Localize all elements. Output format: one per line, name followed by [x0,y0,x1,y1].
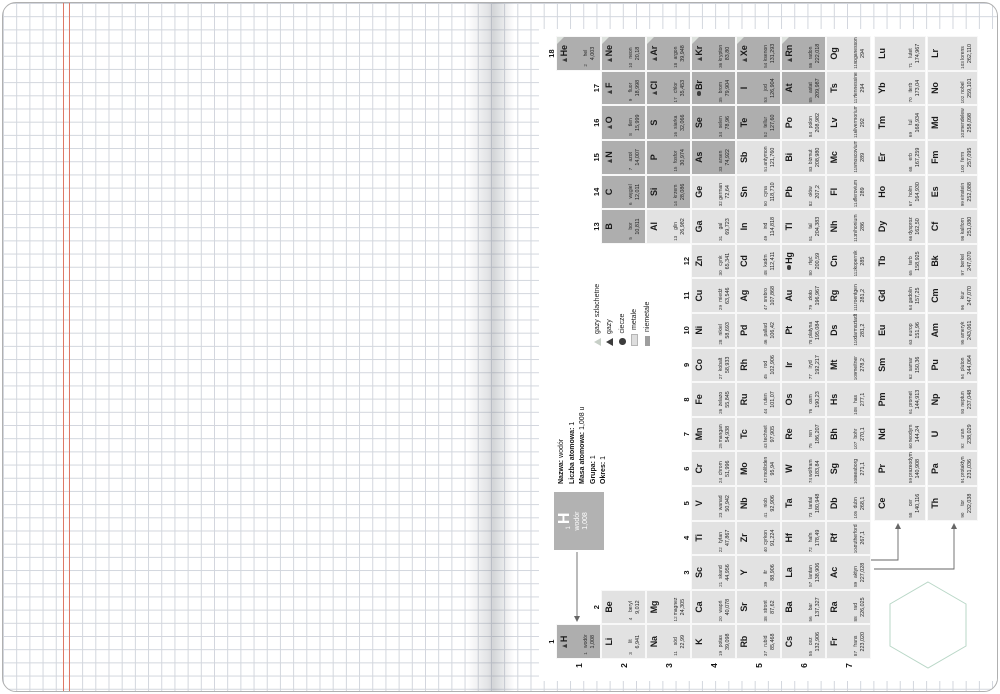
symbol-row: Sr [739,592,749,623]
element-symbol: Nd [877,428,887,440]
symbol-row: C [604,177,614,208]
atomic-mass: 257,095 [967,142,974,173]
gas-triangle-icon [607,90,612,94]
atomic-mass: 158,925 [915,246,922,277]
element-cell: Es99einstein252,088 [927,175,978,210]
atomic-mass: 97,905 [770,419,777,450]
atomic-number: 115 [853,166,858,173]
element-symbol: Es [930,187,940,198]
symbol-row: Cr [694,453,704,484]
atomic-number: 114 [853,200,858,207]
symbol-row: Tl [784,211,794,242]
symbol-row: Te [739,107,749,138]
element-cell: K19potas39,098 [691,624,736,659]
atomic-number: 107 [853,442,858,449]
element-cell: Nh113nihonium286 [826,209,871,244]
element-name: molibden [763,457,769,477]
atomic-mass: 294 [860,73,867,104]
atomic-mass: 10,811 [635,211,642,242]
element-name: ołów [808,183,814,201]
element-symbol: I [739,87,749,89]
atomic-mass: 262,110 [967,38,974,69]
atomic-number: 75 [808,442,813,449]
name-row: 35brom [718,73,724,104]
element-symbol: Cn [829,255,839,267]
element-symbol: Ge [694,186,704,198]
element-cell: Ac89aktyn227,028 [826,555,871,590]
atomic-mass: 24,305 [680,592,687,623]
element-cell: Ca20wapń40,078 [691,590,736,625]
name-row: 33arsen [718,142,724,173]
period-label: 5 [736,659,781,672]
triangle-dark-icon [606,338,613,346]
element-info-box: Nazwa: wodórLiczba atomowa: 1Masa atomow… [557,349,610,484]
atomic-mass: 40,078 [725,592,732,623]
atomic-mass: 294 [860,38,867,69]
atomic-number: 102 [960,96,965,103]
atomic-number: 58 [908,512,913,519]
atomic-number: 5 [628,235,633,242]
symbol-row: Lv [829,107,839,138]
name-row: 47srebro [763,280,769,311]
symbol-row: Po [784,107,794,138]
example-element-symbol: H [557,513,572,525]
atomic-mass: 32,066 [680,107,687,138]
symbol-row: Ts [829,73,839,104]
element-symbol: Mg [649,601,659,614]
element-cell: O8tlen15,999 [601,105,646,140]
element-name: oganesson [853,37,859,61]
element-cell: H1wodór1,008 [556,624,601,659]
element-cell: Ra88rad226,025 [826,590,871,625]
atomic-mass: 26,982 [680,211,687,242]
symbol-row: Es [930,177,940,208]
element-symbol: Ti [694,534,704,541]
atomic-number: 51 [763,166,768,173]
element-name: wolfram [808,459,814,477]
element-symbol: Si [649,188,659,196]
atomic-mass: 178,49 [815,523,822,554]
name-row: 36krypton [718,38,724,69]
atomic-number: 78 [808,339,813,346]
atomic-number: 17 [673,96,678,103]
symbol-row: Pb [784,177,794,208]
element-name: potas [718,632,724,650]
atomic-mass: 118,710 [770,177,777,208]
symbol-row: Cn [829,246,839,277]
atomic-mass: 55,845 [725,384,732,415]
atomic-mass: 292 [860,107,867,138]
atomic-mass: 207,2 [815,177,822,208]
gas-triangle-icon [562,644,567,648]
element-name: holm [908,183,914,201]
atomic-number: 19 [718,650,723,657]
atomic-number: 74 [808,477,813,484]
element-name: protaktyn [960,456,966,477]
name-row: 90tor [960,488,966,519]
symbol-row: Y [739,557,749,588]
atomic-mass: 144,913 [915,384,922,415]
element-name: wapń [718,598,724,616]
legend-label: gazy [606,319,613,334]
element-symbol: Cd [739,255,749,267]
element-name: bizmut [808,148,814,166]
element-cell: No102nobel259,101 [927,71,978,106]
element-name: krypton [718,44,724,62]
atomic-number: 100 [960,166,965,173]
element-symbol: Ag [739,290,749,302]
element-cell: Zn30cynk65,341 [691,244,736,279]
element-cell: Bh107bohr270,1 [826,417,871,452]
red-margin-line [63,3,70,691]
symbol-row: Mc [829,142,839,173]
element-cell: P15fosfor30,974 [646,140,691,175]
symbol-row: Ba [784,592,794,623]
info-label: Masa atomowa: [579,432,586,484]
name-row: 64gadolin [908,280,914,311]
name-row: 4beryl [628,592,634,623]
element-name: cez [808,632,814,650]
symbol-row: Ce [877,488,887,519]
atomic-number: 16 [673,131,678,138]
name-row: 31gal [718,211,724,242]
element-symbol: Ac [829,567,839,578]
symbol-row: Ho [877,177,887,208]
atomic-number: 28 [718,339,723,346]
atomic-mass: 168,934 [915,107,922,138]
element-symbol: Er [877,153,887,162]
atomic-mass: 83,80 [725,38,732,69]
element-name: has [853,390,859,408]
symbol-row: Sn [739,177,749,208]
element-name: tal [808,217,814,235]
name-row: 58cer [908,488,914,519]
name-row: 29miedź [718,280,724,311]
symbol-row: Rg [829,280,839,311]
element-name: ind [763,217,769,235]
symbol-row: Os [784,384,794,415]
element-name: cynk [718,252,724,270]
symbol-row: Ge [694,177,704,208]
atomic-number: 99 [960,200,965,207]
symbol-row: At [784,73,794,104]
element-symbol: Pm [877,393,887,407]
element-symbol: Ho [877,186,887,198]
element-name: nikiel [718,321,724,339]
symbol-row: Lr [930,38,940,69]
info-line: Okres: 1 [599,349,610,484]
atomic-mass: 101,07 [770,384,777,415]
atomic-number: 79 [808,304,813,311]
element-symbol: Tl [784,223,794,231]
element-cell: Eu63europ151,96 [874,313,926,348]
atomic-number: 73 [808,512,813,519]
element-cell: Lr103lorens262,110 [927,36,978,71]
atomic-mass: 252,088 [967,177,974,208]
element-name: bohr [853,425,859,443]
atomic-mass: 238,029 [967,419,974,450]
element-symbol: P [649,154,659,160]
atomic-mass: 18,998 [635,73,642,104]
symbol-row: Cf [930,211,940,242]
name-row: 60neodym [908,419,914,450]
atomic-number: 11 [673,650,678,657]
atomic-number: 80 [808,269,813,276]
element-cell: Fl114flerovium289 [826,175,871,210]
symbol-row: Hs [829,384,839,415]
gas-triangle-icon [787,58,792,62]
atomic-number: 23 [718,512,723,519]
name-row: 32german [718,177,724,208]
element-name: siarka [673,113,679,131]
name-row: 26żelazo [718,384,724,415]
symbol-row: Na [649,626,659,657]
name-row: 17chlor [673,73,679,104]
element-symbol: Pr [877,464,887,473]
symbol-row: S [649,107,659,138]
symbol-row: As [694,142,704,173]
element-name: platyna [808,321,814,339]
atomic-number: 86 [808,62,813,69]
info-value: 1,008 u [579,407,586,432]
element-name: miedź [718,286,724,304]
symbol-row: Hg [784,246,794,277]
element-symbol: Pu [930,359,940,370]
element-symbol: Lv [829,118,839,128]
group-label: 13 [592,209,601,244]
atomic-mass: 196,967 [815,280,822,311]
symbol-row: H [559,626,569,657]
element-name: wanad [718,494,724,512]
element-symbol: Rh [739,359,749,371]
name-row: 57lantan [808,557,814,588]
symbol-row: U [930,419,940,450]
atomic-mass: 65,341 [725,246,732,277]
element-symbol: U [930,431,940,437]
name-row: 95ameryk [960,315,966,346]
noble-gas-corner-marker [692,37,699,44]
element-name: darmsztadt [853,314,859,339]
element-cell: Bi83bizmut208,980 [781,140,826,175]
element-symbol: Se [694,117,704,128]
element-name: neodym [908,425,914,443]
info-line: Grupa: 1 [589,349,600,484]
element-name: chlor [673,79,679,97]
element-symbol: S [649,120,659,126]
symbol-row: Cs [784,626,794,657]
element-symbol: Fe [694,394,704,404]
group-label: 7 [682,417,691,452]
element-symbol: Sg [829,463,839,474]
name-row: 93neptun [960,384,966,415]
name-row: 24chrom [718,453,724,484]
name-row: 56bar [808,592,814,623]
symbol-row: Mg [649,592,659,623]
element-name: żelazo [718,390,724,408]
element-symbol: O [604,117,614,124]
name-row: 38stront [763,592,769,623]
name-row: 67holm [908,177,914,208]
atomic-mass: 78,96 [725,107,732,138]
atomic-mass: 35,453 [680,73,687,104]
element-cell: Se34selen78,96 [691,105,736,140]
element-name: magnez [673,598,679,616]
symbol-row: Cl [649,73,659,104]
element-cell: F9fluor18,998 [601,71,646,106]
element-cell: Pa91protaktyn231,036 [927,451,978,486]
element-symbol: Lr [930,49,940,58]
example-element-mass: 1,008 [582,512,589,530]
name-row: 15fosfor [673,142,679,173]
element-name: antymon [763,146,769,165]
element-cell: Pu94pluton244,064 [927,348,978,383]
name-row: 14krzem [673,177,679,208]
element-cell: Co27kobalt58,933 [691,348,736,383]
element-name: terb [908,252,914,270]
symbol-row: Am [930,315,940,346]
info-label: Grupa: [590,461,597,484]
atomic-mass: 1,008 [590,626,597,657]
name-row: 74wolfram [808,453,814,484]
name-row: 96kiur [960,280,966,311]
name-row: 82ołów [808,177,814,208]
group-label: 17 [592,71,601,106]
atomic-number: 14 [673,200,678,207]
notebook-page: 1 H wodór 1,008 Nazwa: wodórLiczba atomo… [2,2,998,692]
element-name: lit [628,632,634,650]
atomic-number: 29 [718,304,723,311]
atomic-number: 3 [628,650,633,657]
atomic-number: 47 [763,304,768,311]
element-cell: Rf104rutherford267,1 [826,521,871,556]
atomic-number: 6 [628,200,633,207]
element-symbol: Cm [930,289,940,303]
name-row: 28nikiel [718,315,724,346]
atomic-number: 105 [853,512,858,519]
atomic-number: 43 [763,442,768,449]
atomic-mass: 251,080 [967,211,974,242]
legend-item: ciecze [616,241,629,346]
element-cell: Li3lit6,941 [601,624,646,659]
element-symbol: No [930,82,940,94]
element-cell: Yb70iterb173,04 [874,71,926,106]
symbol-row: Ra [829,592,839,623]
element-name: german [718,183,724,201]
element-symbol: Nb [739,498,749,510]
symbol-row: Dy [877,211,887,242]
symbol-row: Ir [784,350,794,381]
element-cell: Mg12magnez24,305 [646,590,691,625]
atomic-mass: 209,987 [815,73,822,104]
atomic-mass: 72,64 [725,177,732,208]
element-name: osm [808,390,814,408]
element-symbol: Al [649,222,659,231]
element-cell: Al13glin26,982 [646,209,691,244]
element-cell: Kr36krypton83,80 [691,36,736,71]
element-symbol: Pb [784,186,794,197]
element-cell: Cr24chrom51,996 [691,451,736,486]
element-cell: Mt109meitner278,2 [826,348,871,383]
name-row: 102nobel [960,73,966,104]
element-name: ameryk [960,321,966,339]
name-row: 86radon [808,38,814,69]
gas-triangle-icon [562,58,567,62]
element-symbol: Yb [877,83,887,94]
element-name: moscovium [853,140,859,165]
element-name: kobalt [718,356,724,374]
element-symbol: Hg [784,252,794,264]
element-symbol: Ds [829,325,839,336]
atomic-number: 53 [763,96,768,103]
period-label: 1 [556,659,601,672]
name-row: 52tellur [763,107,769,138]
symbol-row: Pt [784,315,794,346]
element-symbol: Sc [694,567,704,578]
name-row: 104rutherford [853,523,859,554]
element-cell: Ta73tantal180,948 [781,486,826,521]
atomic-number: 34 [718,131,723,138]
element-symbol: Ir [784,362,794,368]
atomic-mass: 107,868 [770,280,777,311]
name-row: 103lorens [960,38,966,69]
atomic-mass: 69,723 [725,211,732,242]
info-value: 1 [569,422,576,428]
element-symbol: Cr [694,464,704,474]
element-name: technet [763,425,769,443]
element-cell: Na11sód22,99 [646,624,691,659]
element-symbol: Fl [829,188,839,196]
atomic-number: 22 [718,546,723,553]
atomic-mass: 208,980 [815,142,822,173]
atomic-mass: 92,906 [770,488,777,519]
name-row: 9fluor [628,73,634,104]
atomic-number: 68 [908,166,913,173]
symbol-row: Ac [829,557,839,588]
element-name: rtęć [808,252,814,270]
atomic-number: 96 [960,304,965,311]
group-label: 11 [682,278,691,313]
element-cell: Dy66dysproz162,50 [874,209,926,244]
atomic-number: 33 [718,166,723,173]
symbol-row: Ti [694,523,704,554]
name-row: 91protaktyn [960,453,966,484]
element-cell: Ts117tennessine294 [826,71,871,106]
element-symbol: Li [604,638,614,646]
atomic-mass: 95,94 [770,453,777,484]
element-symbol: La [784,567,794,577]
atomic-mass: 132,906 [815,626,822,657]
element-symbol: Sr [739,603,749,612]
symbol-row: N [604,142,614,173]
symbol-row: Si [649,177,659,208]
atomic-mass: 9,012 [635,592,642,623]
symbol-row: Ds [829,315,839,346]
element-cell: Db105dubn268,1 [826,486,871,521]
element-cell: Cm96kiur247,070 [927,278,978,313]
element-symbol: V [694,500,704,506]
element-cell: Ce58cer140,116 [874,486,926,521]
atomic-number: 94 [960,373,965,380]
element-symbol: Kr [694,46,704,56]
info-line: Nazwa: wodór [557,349,568,484]
atomic-number: 35 [718,96,723,103]
atomic-number: 25 [718,442,723,449]
atomic-number: 30 [718,269,723,276]
symbol-row: F [604,73,614,104]
element-symbol: Cf [930,222,940,231]
element-cell: Ba56bar137,327 [781,590,826,625]
square-dark-icon [645,336,650,346]
